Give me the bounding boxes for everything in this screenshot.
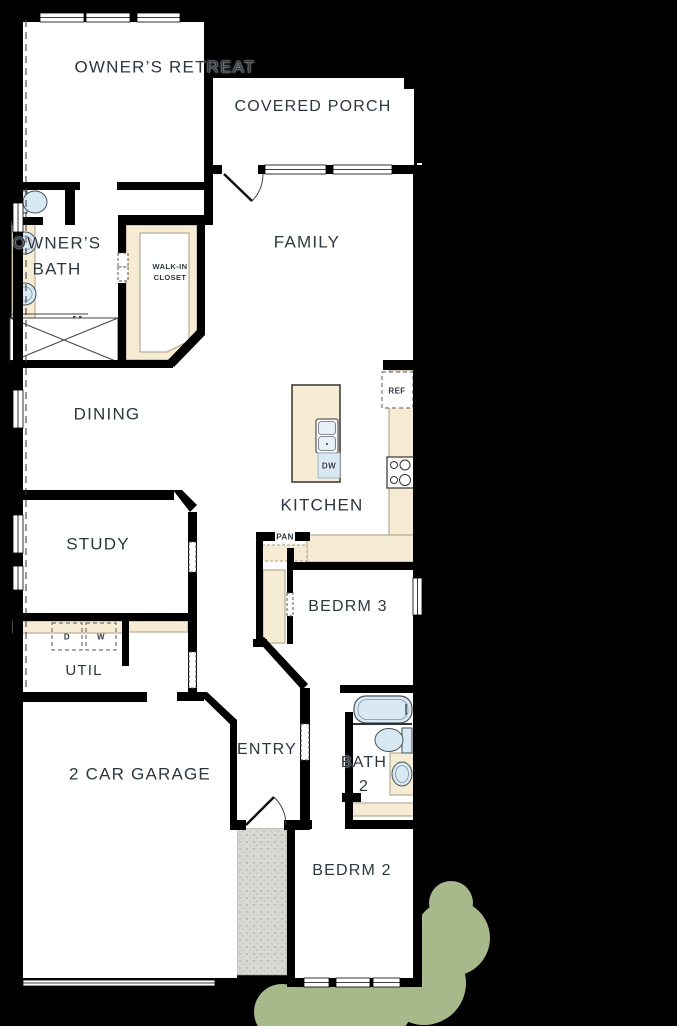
front-walkway xyxy=(237,828,287,975)
kitchen-counter-bottom xyxy=(307,535,415,562)
toilet-bowl xyxy=(23,191,47,213)
pantry-shelf xyxy=(262,545,307,561)
hall-counter xyxy=(128,621,188,632)
cooktop xyxy=(387,457,414,488)
walkin-closet-floor xyxy=(140,233,189,352)
bath2-closet-shelf xyxy=(352,803,414,816)
floor-areas xyxy=(13,13,422,988)
bathtub xyxy=(354,696,412,723)
refrigerator-box xyxy=(382,372,413,408)
toilet2-bowl xyxy=(375,729,403,752)
toilet2-tank xyxy=(402,728,412,753)
door-openings xyxy=(222,165,258,174)
bedrm3-closet-shelf xyxy=(263,570,285,643)
floor-plan: OWNER’S RETREAT COVERED PORCH OWNER’S BA… xyxy=(0,0,677,1026)
kitchen-island xyxy=(292,385,340,482)
floor-plan-drawing xyxy=(0,0,677,1026)
dishwasher xyxy=(318,453,340,478)
